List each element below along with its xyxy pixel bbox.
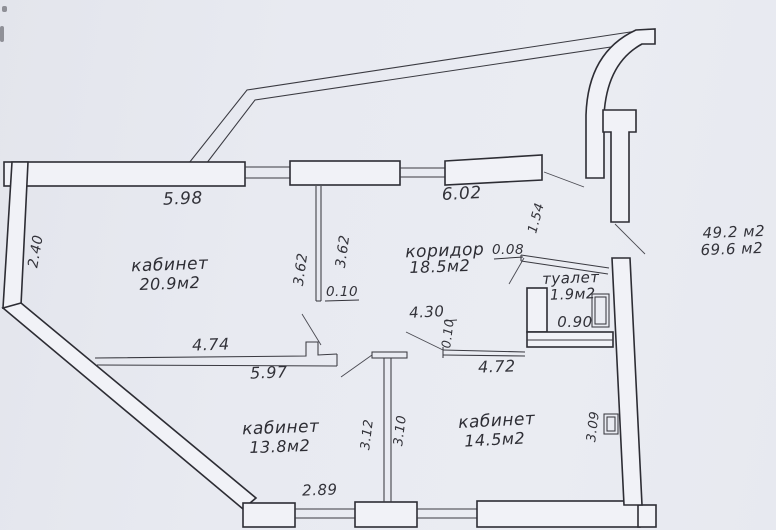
total-area-2: 69.6 м2 xyxy=(700,239,763,259)
leader-line xyxy=(544,172,584,187)
leader-line xyxy=(509,258,524,284)
dim-toilet-width: 0.90 xyxy=(557,313,592,331)
dim-office1-wall-upper: 4.74 xyxy=(192,334,230,354)
dim-entry-niche: 1.54 xyxy=(525,201,548,235)
leader-line xyxy=(615,224,645,254)
dim-underline xyxy=(325,300,359,301)
dim-office1-wall-lower: 5.97 xyxy=(250,362,289,382)
balcony-outline-line xyxy=(189,29,650,163)
entrance-pier xyxy=(603,110,636,222)
scan-artifact xyxy=(0,26,4,42)
room-corridor-area: 18.5м2 xyxy=(409,256,471,277)
floor-plan-canvas: 5.98 6.02 2.40 кабинет 20.9м2 3.62 3.62 … xyxy=(0,0,776,530)
dim-left-wall: 2.40 xyxy=(25,234,47,269)
room-office2-area: 13.8м2 xyxy=(249,436,311,457)
wall-bottom-3 xyxy=(477,501,640,527)
wall-top-mid xyxy=(290,161,400,185)
wall-bottom-2 xyxy=(355,502,417,527)
door-swing xyxy=(302,314,321,345)
wall-bottom-step xyxy=(638,505,656,527)
room-office3-area: 14.5м2 xyxy=(464,428,526,450)
wall-bottom-1 xyxy=(243,503,295,527)
room-office1-area: 20.9м2 xyxy=(139,273,201,294)
dim-office2-height: 3.12 xyxy=(358,418,377,451)
corridor-wall xyxy=(443,350,525,352)
room-toilet-name: туалет xyxy=(542,268,601,288)
dim-office2-bottom: 2.89 xyxy=(302,480,338,499)
dim-office3-height: 3.10 xyxy=(391,414,410,447)
scan-artifact xyxy=(2,6,7,12)
dim-top-wall-right: 6.02 xyxy=(441,183,482,205)
dim-partition-left-side: 3.62 xyxy=(291,252,311,287)
wall-right xyxy=(612,258,642,505)
wall-top-left xyxy=(4,162,245,186)
dim-corridor-opening: 4.30 xyxy=(409,302,445,322)
balcony-outline-line xyxy=(206,41,651,164)
toilet-diagonal-wall xyxy=(521,255,609,268)
toilet-door-leaf-inner xyxy=(595,297,606,324)
toilet-left-wall xyxy=(527,288,547,332)
wall-top-right xyxy=(445,155,542,185)
dim-office3-top-wall: 4.72 xyxy=(478,356,516,376)
dim-top-wall-left: 5.98 xyxy=(163,188,204,209)
dim-corridor-wall-thickness: 0.10 xyxy=(438,318,457,349)
floor-plan-scan: 5.98 6.02 2.40 кабинет 20.9м2 3.62 3.62 … xyxy=(0,0,776,530)
vent-duct-inner xyxy=(607,417,615,431)
dim-partition-thickness: 0.10 xyxy=(326,284,358,300)
partition-office2-bottom xyxy=(97,365,337,366)
partition-t-cap xyxy=(372,352,407,358)
room-toilet-area: 1.9м2 xyxy=(550,286,596,304)
door-swing xyxy=(341,355,372,377)
dim-partition-right-side: 3.62 xyxy=(333,234,353,269)
dim-office3-right: 3.09 xyxy=(584,410,603,443)
dim-toilet-offset: 0.08 xyxy=(492,242,524,258)
